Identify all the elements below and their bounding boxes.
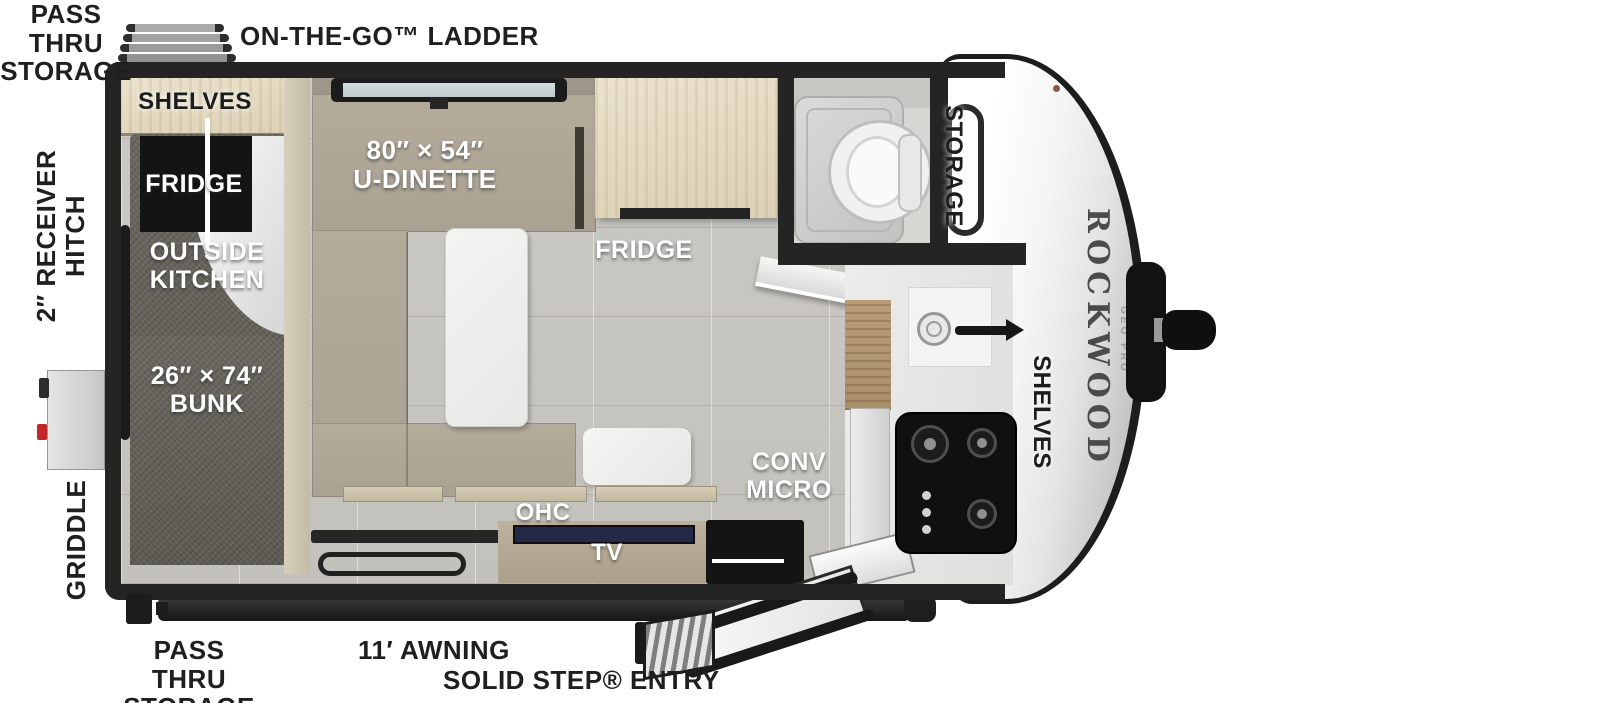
outside-kitchen-label: OUTSIDE KITCHEN [140,238,274,294]
burner-small-top-cap [977,438,987,448]
faucet-arrow [1006,319,1024,341]
cooktop-knob-1 [922,491,931,500]
shelves-kitchen-label: SHELVES [1029,342,1055,482]
griddle-latch [39,378,49,398]
rockwood-wordmark: ROCKWOOD [1073,188,1115,488]
cooktop-knob-3 [922,525,931,534]
griddle-label: GRIDDLE [62,470,92,610]
burner-large-cap [924,438,936,450]
stabilizer-nub [156,602,168,615]
storage-label: STORAGE [939,91,967,241]
microwave-handle [712,559,784,563]
hitch-coupler-icon [1162,310,1216,350]
bathroom-wall-left [778,62,794,254]
bathroom-wall-bottom [778,243,1026,265]
conv-micro-label: CONV MICRO [736,448,842,504]
pass-thru-storage-top-label: PASS THRU STORAGE [0,0,132,86]
burner-small-bottom-cap [977,509,987,519]
ohc-label: OHC [505,500,581,527]
fridge-outside-label: FRIDGE [138,170,250,198]
awning-label: 11′ AWNING [358,636,510,665]
tv-label: TV [574,540,640,567]
pass-thru-storage-bottom-label: PASS THRU STORAGE [113,636,265,703]
receiver-hitch-label: 2″ RECEIVER HITCH [32,136,94,336]
ladder-icon [118,24,238,64]
cooktop-knob-2 [922,508,931,517]
bunk-label: 26″ × 74″ BUNK [140,362,274,418]
faucet-icon [955,326,1011,335]
solid-step-entry-label: SOLID STEP® ENTRY [443,666,720,695]
sink-drain [926,321,942,337]
stabilizer-foot [126,594,152,624]
u-dinette-label: 80″ × 54″ U-DINETTE [333,136,517,194]
shelves-front-label: SHELVES [121,88,269,116]
floorplan-diagram: PASS THRU STORAGE ON-THE-GO™ LADDER 2″ R… [0,0,1600,703]
on-the-go-ladder-label: ON-THE-GO™ LADDER [240,22,539,51]
griddle-valve-red [37,424,47,440]
fridge-label: FRIDGE [586,236,702,264]
nose-rivet-dot [1053,85,1060,92]
griddle-box [47,370,105,470]
